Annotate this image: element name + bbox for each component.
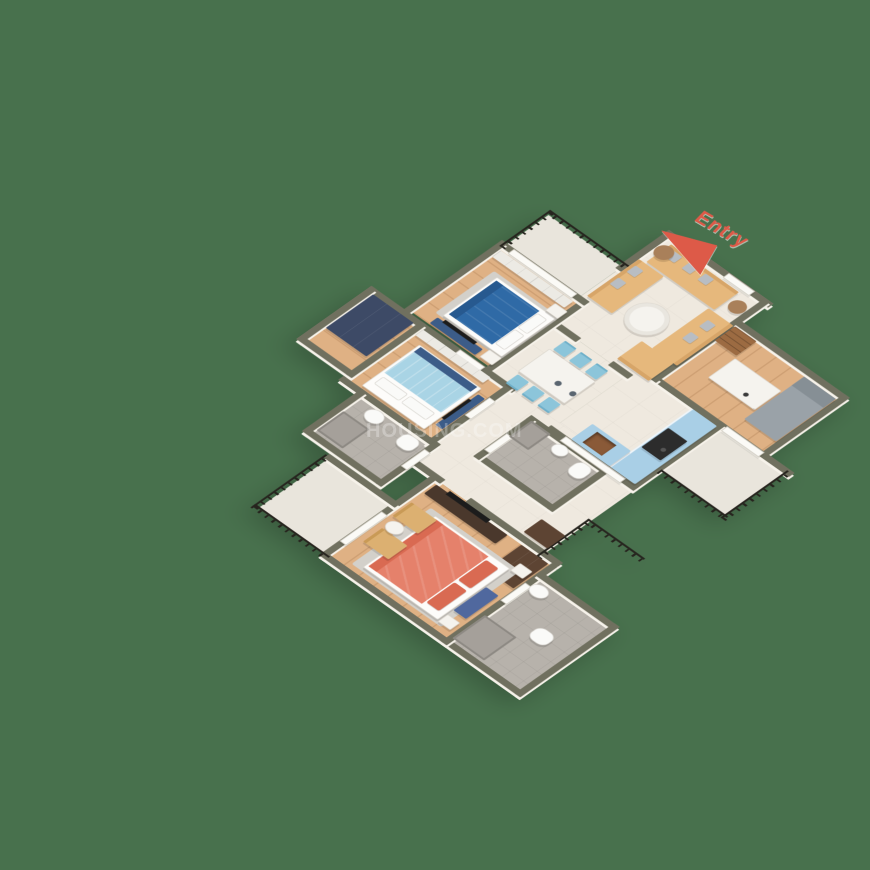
watermark: HOUSING.COM bbox=[366, 420, 523, 443]
floor-plan-scene: HOUSING.COM Entry bbox=[0, 0, 870, 870]
railing-utility-top bbox=[584, 519, 646, 563]
